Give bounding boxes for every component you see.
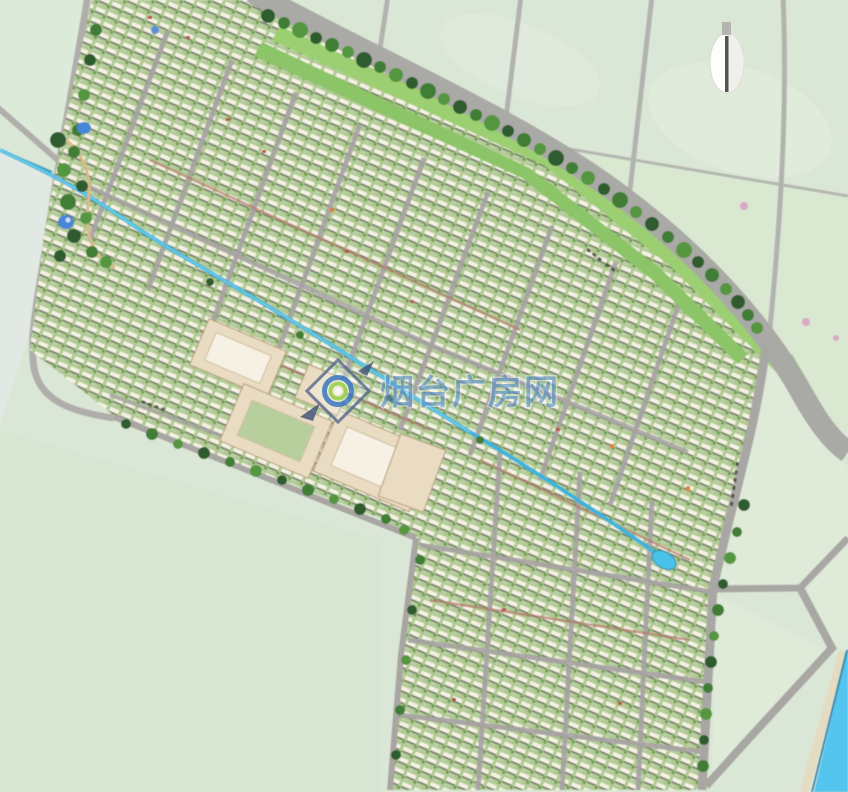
master-plan-canvas: 烟台广房网 烟台广房网 <box>0 0 848 792</box>
watermark-text: 烟台广房网 <box>380 373 560 413</box>
site-plan-map: 烟台广房网 烟台广房网 <box>0 0 848 792</box>
pond-1 <box>77 122 91 134</box>
pond-3 <box>151 26 159 34</box>
compass-stub <box>722 22 731 35</box>
compass-needle <box>725 36 729 92</box>
logo-center <box>335 388 341 394</box>
pond-2 <box>58 215 74 229</box>
